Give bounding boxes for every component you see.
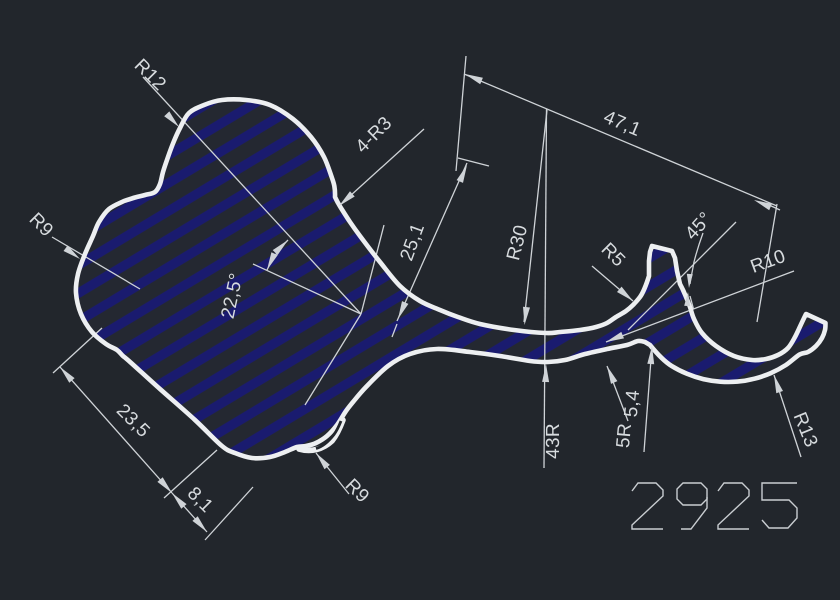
- svg-text:43R: 43R: [543, 423, 564, 459]
- svg-text:5,4: 5,4: [621, 389, 644, 418]
- svg-text:5R: 5R: [613, 422, 636, 449]
